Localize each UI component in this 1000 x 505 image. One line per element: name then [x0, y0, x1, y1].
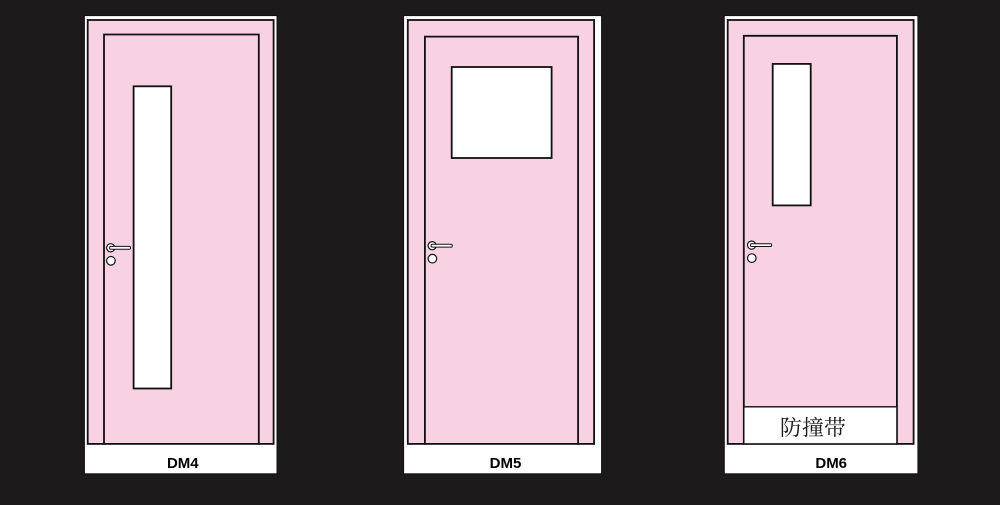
- svg-text:DM4: DM4: [167, 455, 199, 472]
- svg-text:DM6: DM6: [815, 455, 847, 472]
- svg-text:DM5: DM5: [490, 455, 522, 472]
